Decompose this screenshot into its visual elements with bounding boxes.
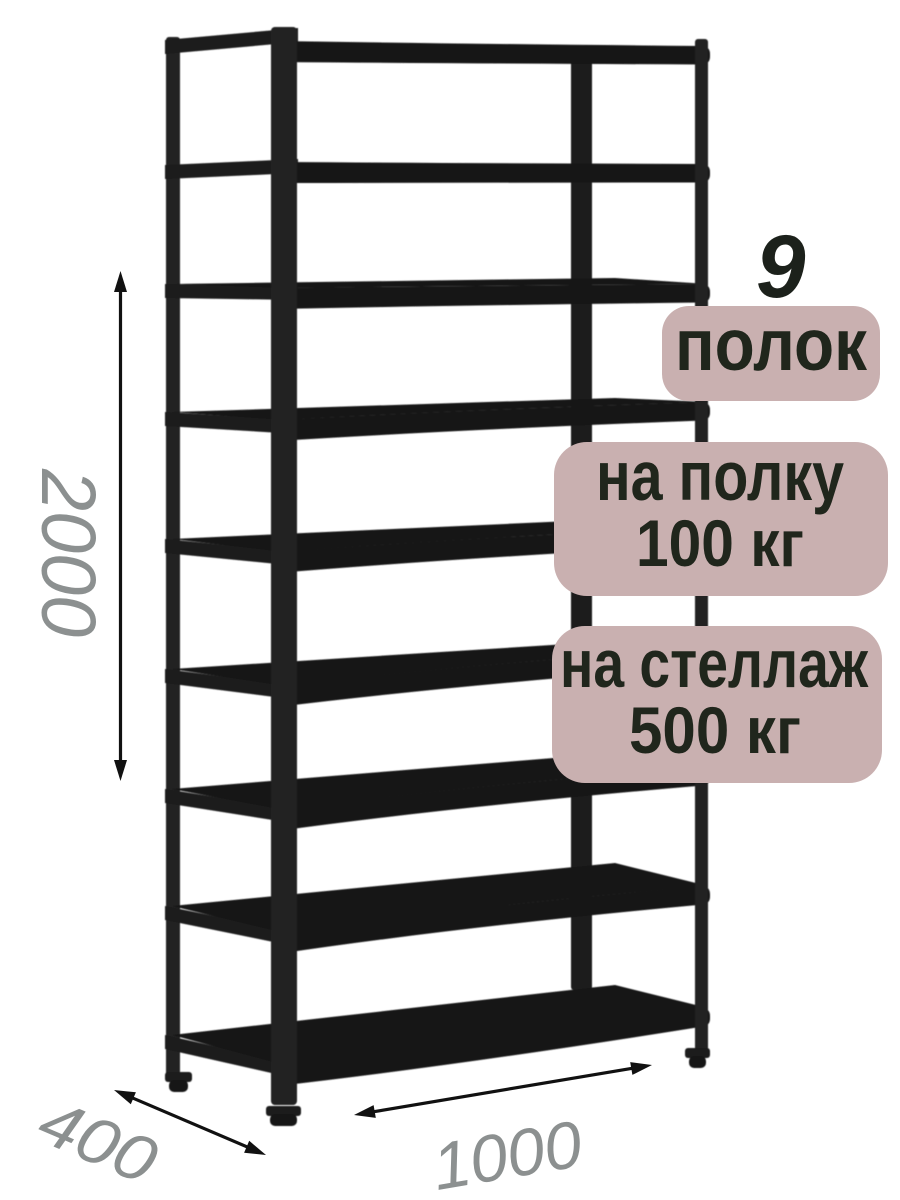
svg-text:на стеллаж: на стеллаж <box>560 626 869 702</box>
svg-text:полок: полок <box>675 305 867 386</box>
svg-text:500 кг: 500 кг <box>629 693 801 767</box>
svg-text:на полку: на полку <box>596 437 844 515</box>
svg-text:9: 9 <box>756 216 806 316</box>
svg-text:2000: 2000 <box>25 468 111 637</box>
svg-text:100 кг: 100 кг <box>636 506 804 580</box>
